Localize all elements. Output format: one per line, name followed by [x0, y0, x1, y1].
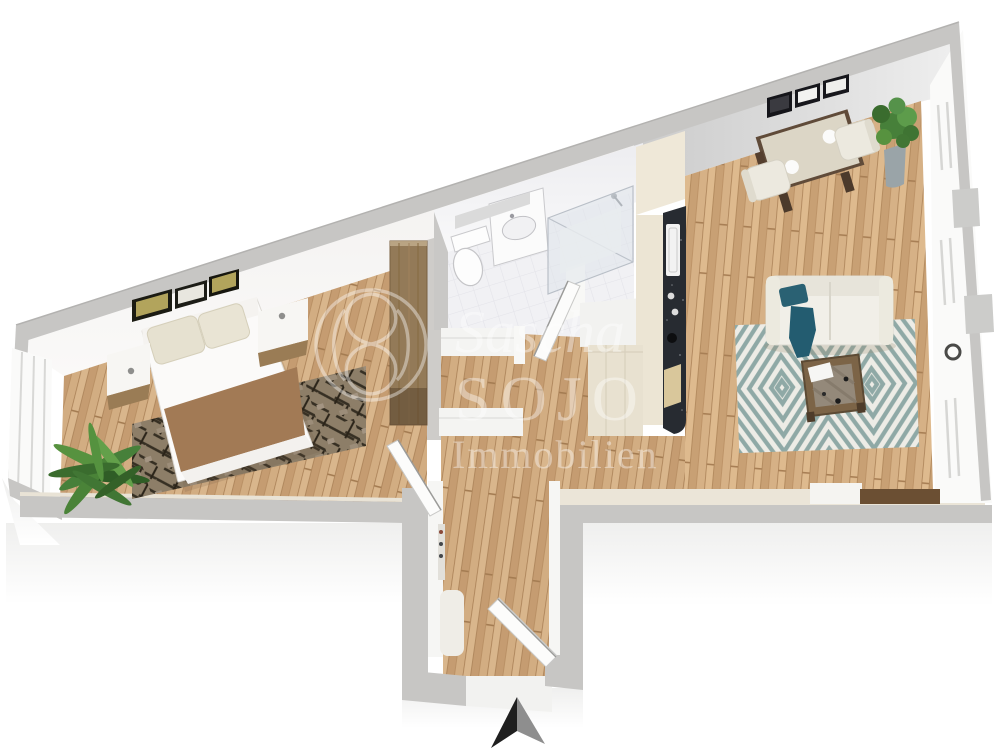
svg-text:SOJO: SOJO [455, 363, 648, 434]
svg-text:Immobilien: Immobilien [452, 432, 659, 477]
svg-text:Sascha: Sascha [455, 299, 625, 365]
